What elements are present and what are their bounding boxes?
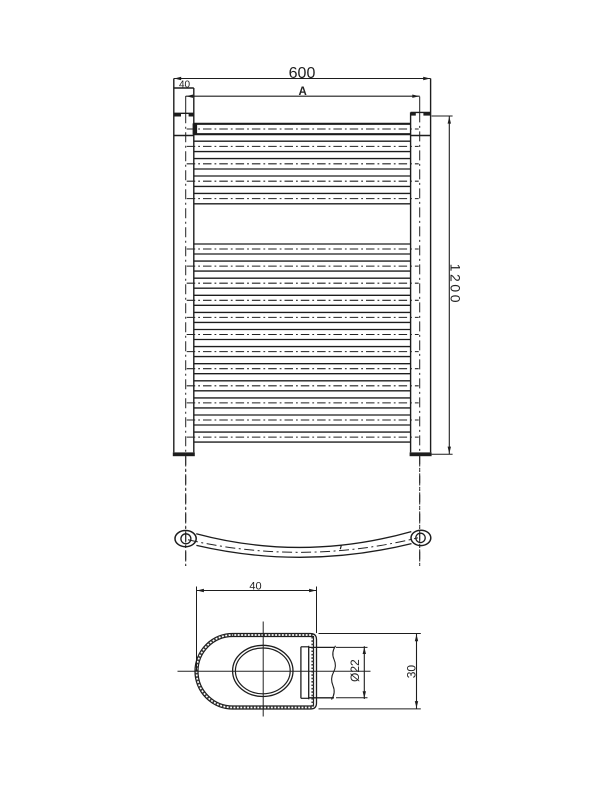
svg-text:40: 40 bbox=[249, 580, 261, 592]
svg-text:40: 40 bbox=[179, 80, 191, 91]
svg-text:30: 30 bbox=[405, 665, 419, 679]
svg-text:A: A bbox=[298, 86, 306, 98]
svg-text:600: 600 bbox=[289, 65, 316, 82]
svg-text:Ø22: Ø22 bbox=[348, 659, 362, 682]
svg-text:1200: 1200 bbox=[447, 264, 463, 306]
